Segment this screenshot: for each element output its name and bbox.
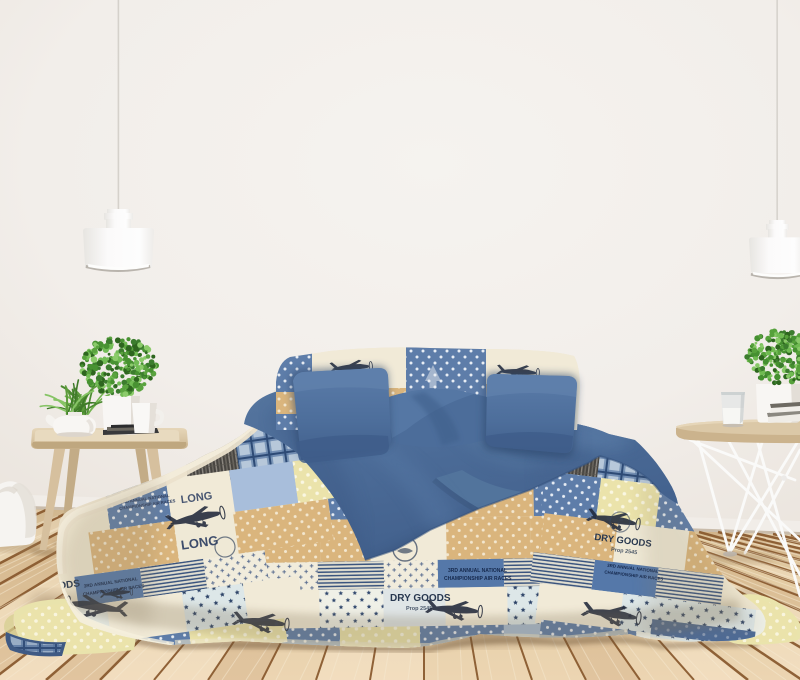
- svg-text:3RD ANNUAL NATIONAL: 3RD ANNUAL NATIONAL: [448, 568, 507, 574]
- svg-text:DRY GOODS: DRY GOODS: [390, 593, 451, 604]
- svg-text:CHAMPIONSHIP AIR RACES: CHAMPIONSHIP AIR RACES: [444, 576, 512, 582]
